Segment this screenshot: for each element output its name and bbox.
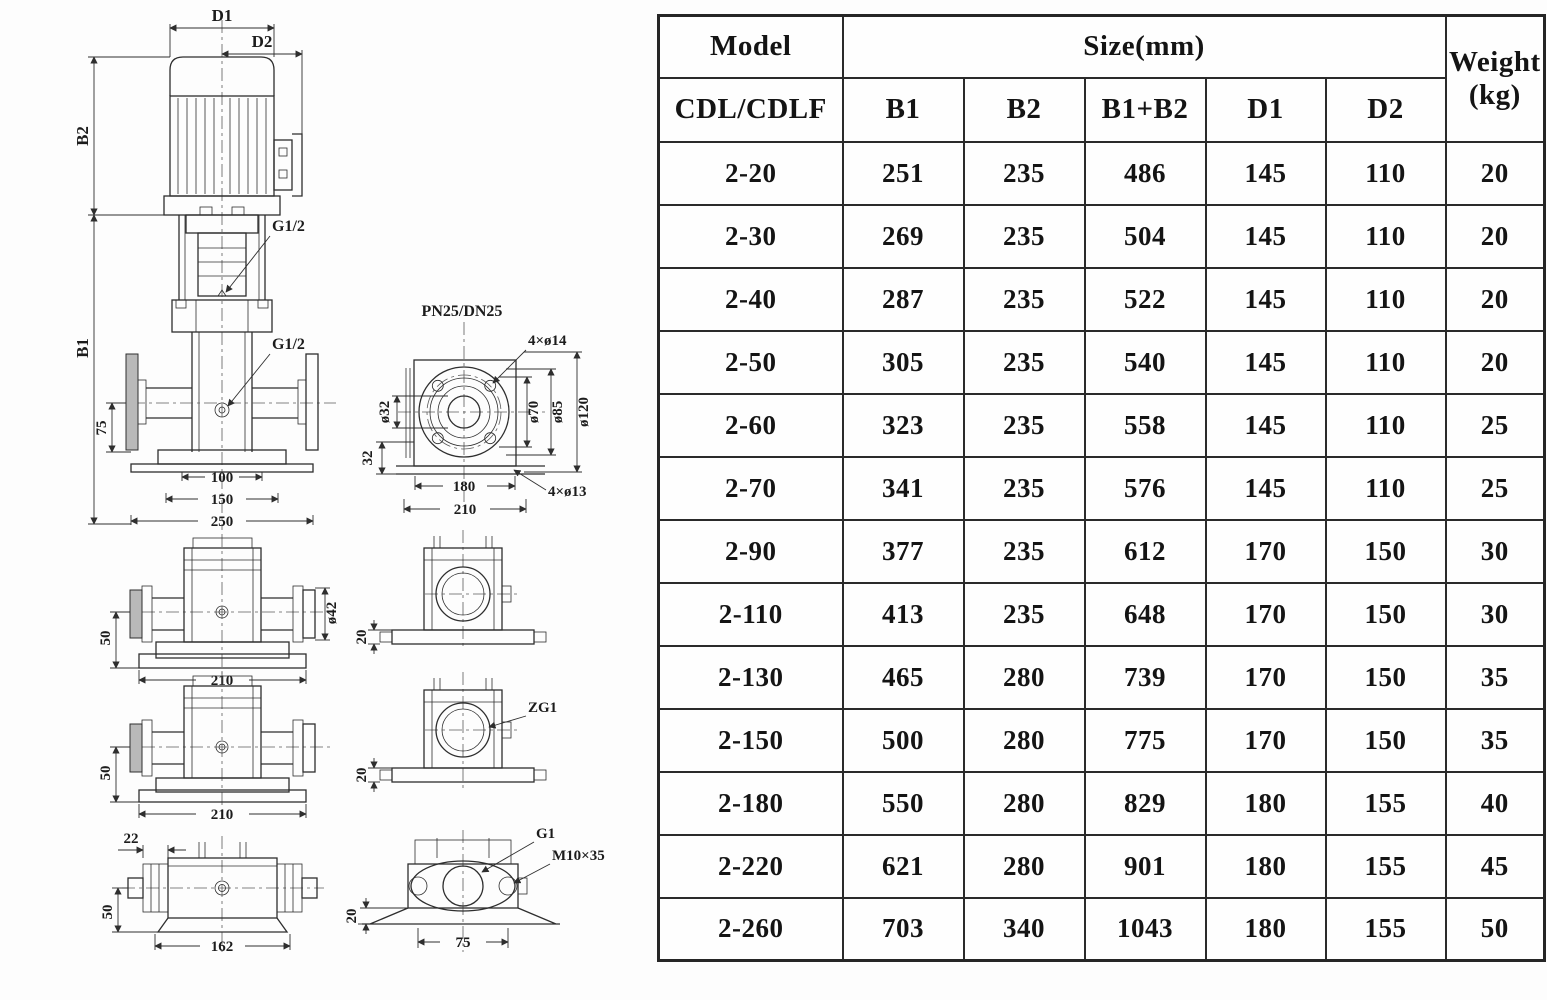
header-weight-line1: Weight xyxy=(1447,46,1544,79)
side1-dim-50: 50 xyxy=(98,631,114,646)
port-view-1: 20 xyxy=(354,530,546,654)
header-b1b2: B1+B2 xyxy=(1085,78,1206,142)
cell-kg: 25 xyxy=(1446,457,1545,520)
cell-b2: 280 xyxy=(964,835,1085,898)
cell-b1b2: 612 xyxy=(1085,520,1206,583)
cell-kg: 45 xyxy=(1446,835,1545,898)
dim-250-label: 250 xyxy=(211,514,234,530)
cell-b2: 280 xyxy=(964,709,1085,772)
cell-d1: 145 xyxy=(1206,394,1326,457)
cell-d2: 110 xyxy=(1326,205,1446,268)
cell-d2: 155 xyxy=(1326,772,1446,835)
cell-b1: 550 xyxy=(843,772,964,835)
cell-b2: 235 xyxy=(964,142,1085,205)
cell-d2: 155 xyxy=(1326,898,1446,961)
header-d1: D1 xyxy=(1206,78,1326,142)
cell-b1: 465 xyxy=(843,646,964,709)
cell-d1: 170 xyxy=(1206,520,1326,583)
table-row: 2-20 251 235 486 145 110 20 xyxy=(659,142,1545,205)
cell-kg: 20 xyxy=(1446,268,1545,331)
cell-b1b2: 540 xyxy=(1085,331,1206,394)
cell-kg: 30 xyxy=(1446,583,1545,646)
cell-b1: 323 xyxy=(843,394,964,457)
cell-b1b2: 648 xyxy=(1085,583,1206,646)
cell-d1: 170 xyxy=(1206,646,1326,709)
left-flange xyxy=(126,354,192,450)
dimension-table: Model Size(mm) Weight (kg) CDL/CDLF B1 B… xyxy=(657,14,1546,962)
bottom-view: 22 50 162 xyxy=(100,831,324,956)
cell-b1b2: 576 xyxy=(1085,457,1206,520)
cell-d2: 110 xyxy=(1326,142,1446,205)
cell-d1: 180 xyxy=(1206,772,1326,835)
cell-b1b2: 504 xyxy=(1085,205,1206,268)
cell-b1: 500 xyxy=(843,709,964,772)
cell-model: 2-20 xyxy=(659,142,843,205)
cell-kg: 25 xyxy=(1446,394,1545,457)
cell-model: 2-150 xyxy=(659,709,843,772)
dim-180-label: 180 xyxy=(453,479,476,495)
cell-model: 2-60 xyxy=(659,394,843,457)
cell-d2: 155 xyxy=(1326,835,1446,898)
cell-b2: 280 xyxy=(964,772,1085,835)
table-row: 2-180 550 280 829 180 155 40 xyxy=(659,772,1545,835)
cell-b1b2: 775 xyxy=(1085,709,1206,772)
cell-b1b2: 901 xyxy=(1085,835,1206,898)
cell-b1: 251 xyxy=(843,142,964,205)
table-row: 2-260 703 340 1043 180 155 50 xyxy=(659,898,1545,961)
bottom-dim-22: 22 xyxy=(124,831,139,847)
oval-dim-75: 75 xyxy=(456,935,471,951)
g12-top-label: G1/2 xyxy=(272,218,305,235)
cell-d1: 170 xyxy=(1206,583,1326,646)
dim-d1-label: D1 xyxy=(212,6,233,25)
cell-b1b2: 522 xyxy=(1085,268,1206,331)
cell-model: 2-220 xyxy=(659,835,843,898)
header-b2: B2 xyxy=(964,78,1085,142)
d85-label: ø85 xyxy=(550,401,566,424)
header-model: Model xyxy=(659,16,843,78)
header-size-group: Size(mm) xyxy=(843,16,1446,78)
table-row: 2-130 465 280 739 170 150 35 xyxy=(659,646,1545,709)
cell-d2: 150 xyxy=(1326,646,1446,709)
header-weight: Weight (kg) xyxy=(1446,16,1545,142)
cell-model: 2-90 xyxy=(659,520,843,583)
cell-model: 2-40 xyxy=(659,268,843,331)
cell-d2: 110 xyxy=(1326,331,1446,394)
cell-d2: 110 xyxy=(1326,394,1446,457)
table-row: 2-70 341 235 576 145 110 25 xyxy=(659,457,1545,520)
cell-model: 2-130 xyxy=(659,646,843,709)
cell-b1: 377 xyxy=(843,520,964,583)
table-row: 2-220 621 280 901 180 155 45 xyxy=(659,835,1545,898)
cell-kg: 40 xyxy=(1446,772,1545,835)
cell-b1b2: 829 xyxy=(1085,772,1206,835)
side2-dim-50: 50 xyxy=(98,766,114,781)
table-row: 2-90 377 235 612 170 150 30 xyxy=(659,520,1545,583)
cell-b1b2: 558 xyxy=(1085,394,1206,457)
pump-spec-sheet: D1 D2 B2 B1 G1/2 G1/2 75 xyxy=(0,0,1547,1000)
bottom-dim-50: 50 xyxy=(100,905,116,920)
dim-b1-label: B1 xyxy=(73,338,92,358)
oval-dim-20: 20 xyxy=(344,909,360,924)
holes-top-label: 4×ø14 xyxy=(528,333,567,349)
cell-b2: 235 xyxy=(964,583,1085,646)
header-weight-line2: (kg) xyxy=(1447,79,1544,112)
cell-b1: 269 xyxy=(843,205,964,268)
table-row: 2-150 500 280 775 170 150 35 xyxy=(659,709,1545,772)
cell-d2: 150 xyxy=(1326,709,1446,772)
cell-b2: 235 xyxy=(964,520,1085,583)
side1-d42: ø42 xyxy=(324,602,340,625)
cell-b2: 340 xyxy=(964,898,1085,961)
cell-kg: 20 xyxy=(1446,142,1545,205)
oval-bolt-label: M10×35 xyxy=(552,848,605,864)
flange-title: PN25/DN25 xyxy=(422,303,503,320)
oval-g1-label: G1 xyxy=(536,826,555,842)
table-row: 2-60 323 235 558 145 110 25 xyxy=(659,394,1545,457)
table-row: 2-30 269 235 504 145 110 20 xyxy=(659,205,1545,268)
cell-d2: 110 xyxy=(1326,457,1446,520)
table-row: 2-50 305 235 540 145 110 20 xyxy=(659,331,1545,394)
cell-b1b2: 739 xyxy=(1085,646,1206,709)
cell-kg: 35 xyxy=(1446,709,1545,772)
header-model-sub: CDL/CDLF xyxy=(659,78,843,142)
cell-b1b2: 1043 xyxy=(1085,898,1206,961)
flange-top-view: PN25/DN25 4×ø14 xyxy=(360,303,592,518)
cell-d2: 150 xyxy=(1326,583,1446,646)
cell-model: 2-110 xyxy=(659,583,843,646)
cell-b1: 413 xyxy=(843,583,964,646)
d70-label: ø70 xyxy=(526,401,542,424)
cell-b2: 235 xyxy=(964,331,1085,394)
cell-b1: 621 xyxy=(843,835,964,898)
cell-b1: 305 xyxy=(843,331,964,394)
port1-dim-20: 20 xyxy=(354,630,370,645)
cell-d2: 110 xyxy=(1326,268,1446,331)
dim-210-label: 210 xyxy=(454,502,477,518)
dim-75-label: 75 xyxy=(94,421,110,436)
cell-model: 2-30 xyxy=(659,205,843,268)
front-view: D1 D2 B2 B1 G1/2 G1/2 75 xyxy=(73,6,336,530)
holes-bottom-label: 4×ø13 xyxy=(548,484,587,500)
cell-b1: 341 xyxy=(843,457,964,520)
header-d2: D2 xyxy=(1326,78,1446,142)
cell-b2: 280 xyxy=(964,646,1085,709)
dim-d2-label: D2 xyxy=(252,32,273,51)
cell-b2: 235 xyxy=(964,457,1085,520)
side-view-2: 50 210 xyxy=(98,672,330,823)
cell-model: 2-70 xyxy=(659,457,843,520)
cell-b1b2: 486 xyxy=(1085,142,1206,205)
cell-d2: 150 xyxy=(1326,520,1446,583)
cell-d1: 145 xyxy=(1206,268,1326,331)
cell-b1: 703 xyxy=(843,898,964,961)
cell-d1: 145 xyxy=(1206,457,1326,520)
cell-d1: 145 xyxy=(1206,331,1326,394)
cell-kg: 20 xyxy=(1446,205,1545,268)
side-view-1: 50 ø42 210 xyxy=(98,534,340,689)
cell-kg: 30 xyxy=(1446,520,1545,583)
g12-mid-label: G1/2 xyxy=(272,336,305,353)
cell-model: 2-260 xyxy=(659,898,843,961)
port-view-2: ZG1 20 xyxy=(354,672,557,792)
dim-b2-label: B2 xyxy=(73,126,92,146)
dim-32-label: 32 xyxy=(360,451,376,466)
cell-d1: 145 xyxy=(1206,205,1326,268)
cell-model: 2-180 xyxy=(659,772,843,835)
cell-b1: 287 xyxy=(843,268,964,331)
dim-100-label: 100 xyxy=(211,470,234,486)
port2-zg1-label: ZG1 xyxy=(528,700,557,716)
cell-d1: 180 xyxy=(1206,835,1326,898)
bottom-dim-162: 162 xyxy=(211,939,234,955)
oval-flange-view: G1 M10×35 20 75 xyxy=(344,826,605,952)
header-b1: B1 xyxy=(843,78,964,142)
cell-b2: 235 xyxy=(964,205,1085,268)
cell-b2: 235 xyxy=(964,394,1085,457)
table-row: 2-40 287 235 522 145 110 20 xyxy=(659,268,1545,331)
cell-model: 2-50 xyxy=(659,331,843,394)
cell-kg: 35 xyxy=(1446,646,1545,709)
cell-kg: 50 xyxy=(1446,898,1545,961)
pump-technical-drawing: D1 D2 B2 B1 G1/2 G1/2 75 xyxy=(0,0,655,1000)
cell-kg: 20 xyxy=(1446,331,1545,394)
right-flange xyxy=(252,354,318,450)
cell-d1: 145 xyxy=(1206,142,1326,205)
table-row: 2-110 413 235 648 170 150 30 xyxy=(659,583,1545,646)
cell-b2: 235 xyxy=(964,268,1085,331)
cell-d1: 180 xyxy=(1206,898,1326,961)
junction-box xyxy=(274,134,302,196)
bore-label: ø32 xyxy=(377,401,393,424)
dim-150-label: 150 xyxy=(211,492,234,508)
d120-label: ø120 xyxy=(576,397,592,427)
cell-d1: 170 xyxy=(1206,709,1326,772)
side2-dim-210: 210 xyxy=(211,807,234,823)
port2-dim-20: 20 xyxy=(354,768,370,783)
